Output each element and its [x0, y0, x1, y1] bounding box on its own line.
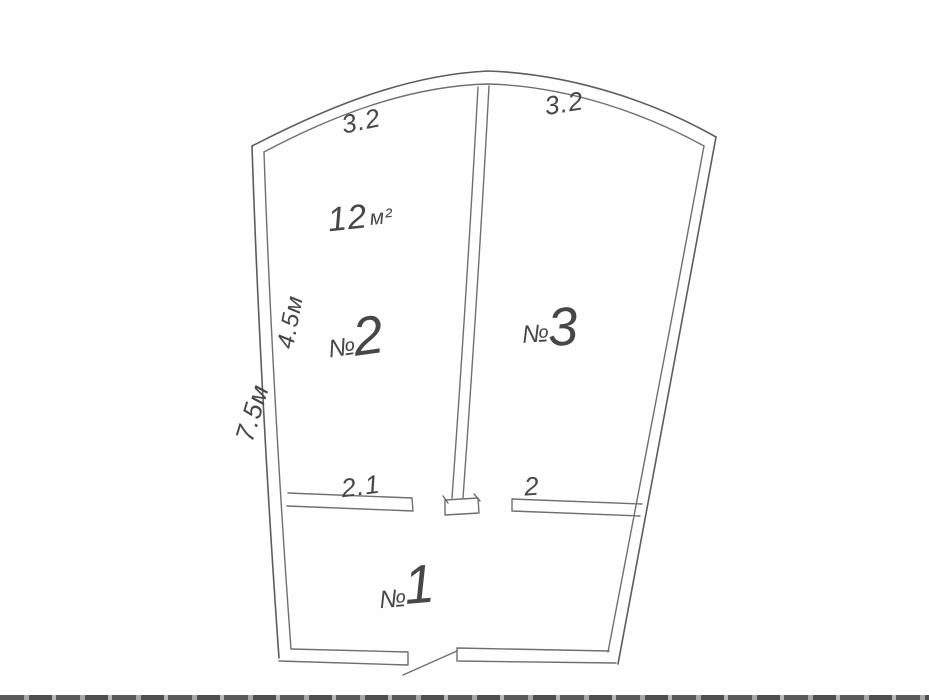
- door-swing-line: [403, 651, 457, 675]
- room-3-number: 3: [545, 296, 580, 358]
- floor-plan-drawing: 3.2 3.2 12 м² 4.5м 7.5м № 2 № 3 №: [0, 0, 929, 700]
- area-unit: м²: [369, 205, 395, 230]
- wall-right-inner: [608, 146, 704, 652]
- room-label-2: № 2: [323, 304, 388, 371]
- area-label-room2: 12 м²: [326, 195, 395, 240]
- room-1-number: 1: [401, 553, 437, 615]
- scanned-floor-plan-page: 3.2 3.2 12 м² 4.5м 7.5м № 2 № 3 №: [0, 0, 929, 700]
- wall-top-arch-inner: [264, 84, 704, 152]
- wall-mid-right-segment: [512, 499, 642, 516]
- dimension-mid-wall-right: 2: [522, 471, 541, 502]
- dimension-top-left-wall: 3.2: [339, 102, 384, 139]
- wall-center-footing-block: [445, 498, 479, 515]
- dimension-mid-wall-left: 2.1: [338, 469, 382, 504]
- scan-edge-artifact: [0, 695, 929, 700]
- wall-top-arch-outer: [252, 71, 716, 146]
- wall-bottom-left-segment: [279, 649, 408, 665]
- wall-right-outer: [618, 137, 716, 664]
- wall-bottom-right-segment: [457, 648, 616, 663]
- dimension-left-wall-total: 7.5м: [229, 381, 275, 445]
- room-label-1: № 1: [376, 553, 438, 618]
- area-value: 12: [326, 197, 370, 239]
- wall-center-vertical-right: [463, 86, 489, 498]
- dimension-top-right-wall: 3.2: [542, 85, 585, 121]
- wall-center-vertical-left: [452, 87, 478, 498]
- room-label-3: № 3: [520, 296, 581, 360]
- walls: [252, 71, 716, 675]
- dimension-left-wall-upper: 4.5м: [272, 293, 309, 351]
